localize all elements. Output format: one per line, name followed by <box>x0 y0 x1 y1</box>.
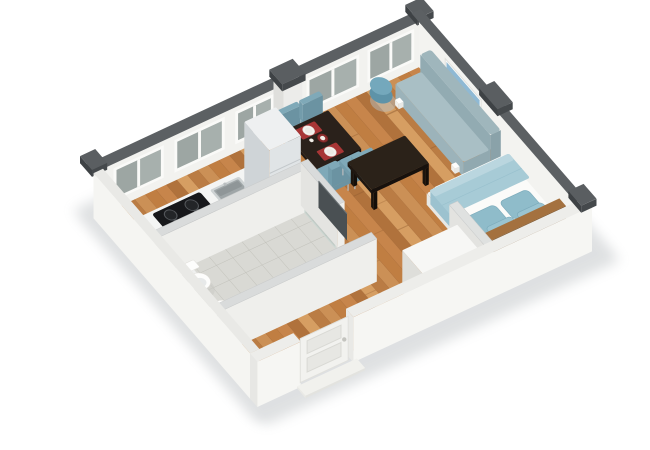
floor-plan-3d-render <box>0 0 650 450</box>
apartment-isometric-view <box>0 0 650 450</box>
door-handle <box>342 337 346 341</box>
